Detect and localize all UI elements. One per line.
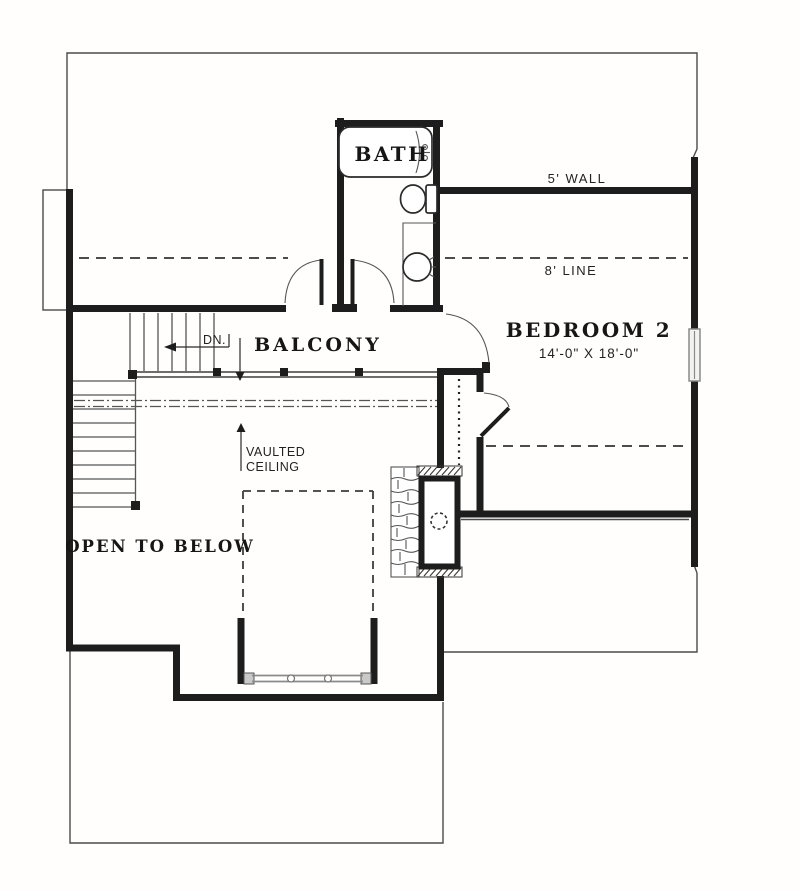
toilet-tank-icon [426, 185, 437, 213]
floor-plan-svg: BATH BALCONY BEDROOM 2 14'-0" X 18'-0" O… [0, 0, 800, 890]
stair-upper-run [130, 313, 214, 371]
bedroom2-label: BEDROOM 2 [506, 318, 672, 342]
bath-label: BATH [354, 142, 429, 166]
overhead-edge-lines [74, 401, 437, 407]
left-chimney-chase [43, 190, 69, 310]
vaulted-ceiling-label-line2: CEILING [246, 460, 300, 474]
dn-label: DN. [203, 333, 226, 347]
vaulted-ceiling-label-line1: VAULTED [246, 445, 305, 459]
annotation-arrows [164, 334, 246, 471]
dn-arrow-icon [164, 343, 176, 352]
floor-plan: BATH BALCONY BEDROOM 2 14'-0" X 18'-0" O… [0, 0, 800, 890]
balcony-railing [128, 368, 438, 379]
five-foot-wall-label: 5' WALL [548, 171, 607, 186]
exterior-walls [66, 157, 698, 701]
attic-door-arc [285, 260, 321, 303]
staircase [73, 313, 214, 510]
stone-veneer [391, 467, 419, 577]
labels: BATH BALCONY BEDROOM 2 14'-0" X 18'-0" O… [65, 142, 672, 556]
up-arrow-icon [237, 423, 246, 432]
open-to-below-boundary [243, 491, 373, 617]
fireplace [391, 466, 462, 577]
sink-icon [403, 253, 431, 281]
eight-foot-line-label: 8' LINE [545, 263, 598, 278]
bedroom-entry-door-arc [446, 314, 489, 363]
bedroom-window [689, 329, 700, 381]
open-to-below-label: OPEN TO BELOW [65, 537, 255, 556]
bay-window [244, 673, 371, 684]
stair-lower-run [73, 378, 136, 509]
bedroom2-dims-label: 14'-0" X 18'-0" [539, 346, 639, 361]
toilet-icon [401, 185, 426, 213]
bedroom-door-leaf [481, 408, 509, 436]
bedroom-door-arc [484, 393, 509, 407]
bath-door-arc [353, 260, 394, 303]
interior-walls [241, 118, 490, 701]
chimney-flue-icon [431, 513, 447, 529]
balcony-label: BALCONY [254, 334, 382, 356]
door-stub-cap [332, 304, 357, 312]
stair-newel-post [131, 501, 140, 510]
mullion-circle [325, 675, 332, 682]
mullion-circle [288, 675, 295, 682]
